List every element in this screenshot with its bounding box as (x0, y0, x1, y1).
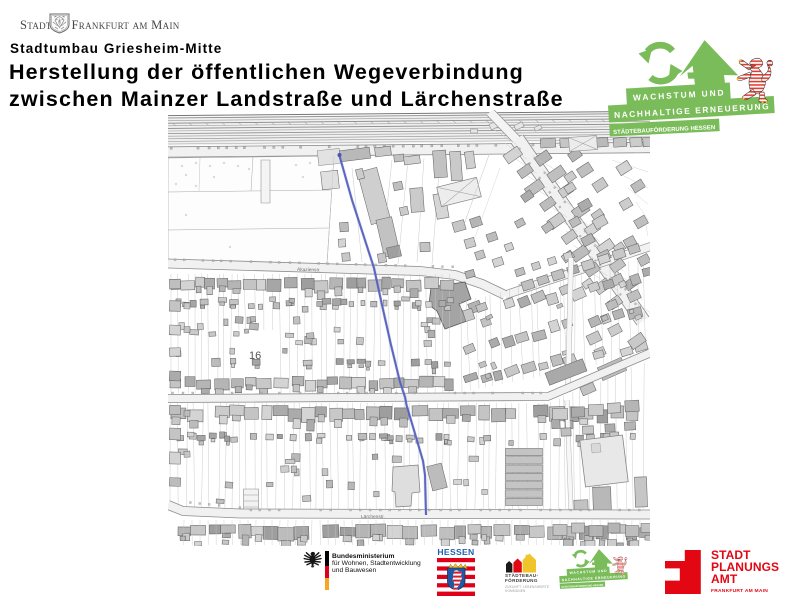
svg-text:16: 16 (249, 350, 261, 362)
svg-text:Lärchenstr.: Lärchenstr. (361, 514, 385, 520)
svg-text:Akazienstr.: Akazienstr. (297, 267, 321, 274)
